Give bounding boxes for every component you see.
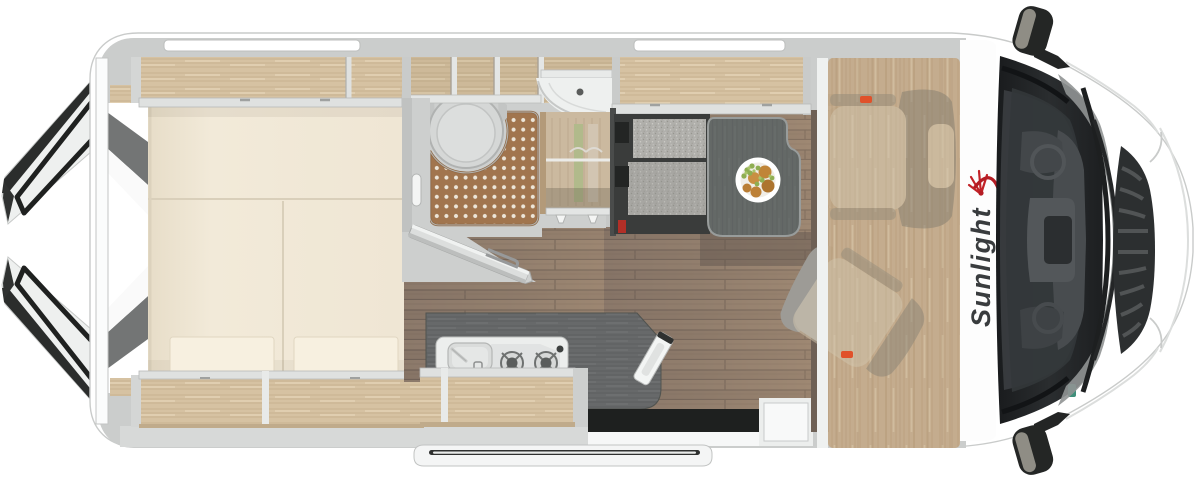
svg-text:Sunlight: Sunlight: [966, 207, 996, 327]
